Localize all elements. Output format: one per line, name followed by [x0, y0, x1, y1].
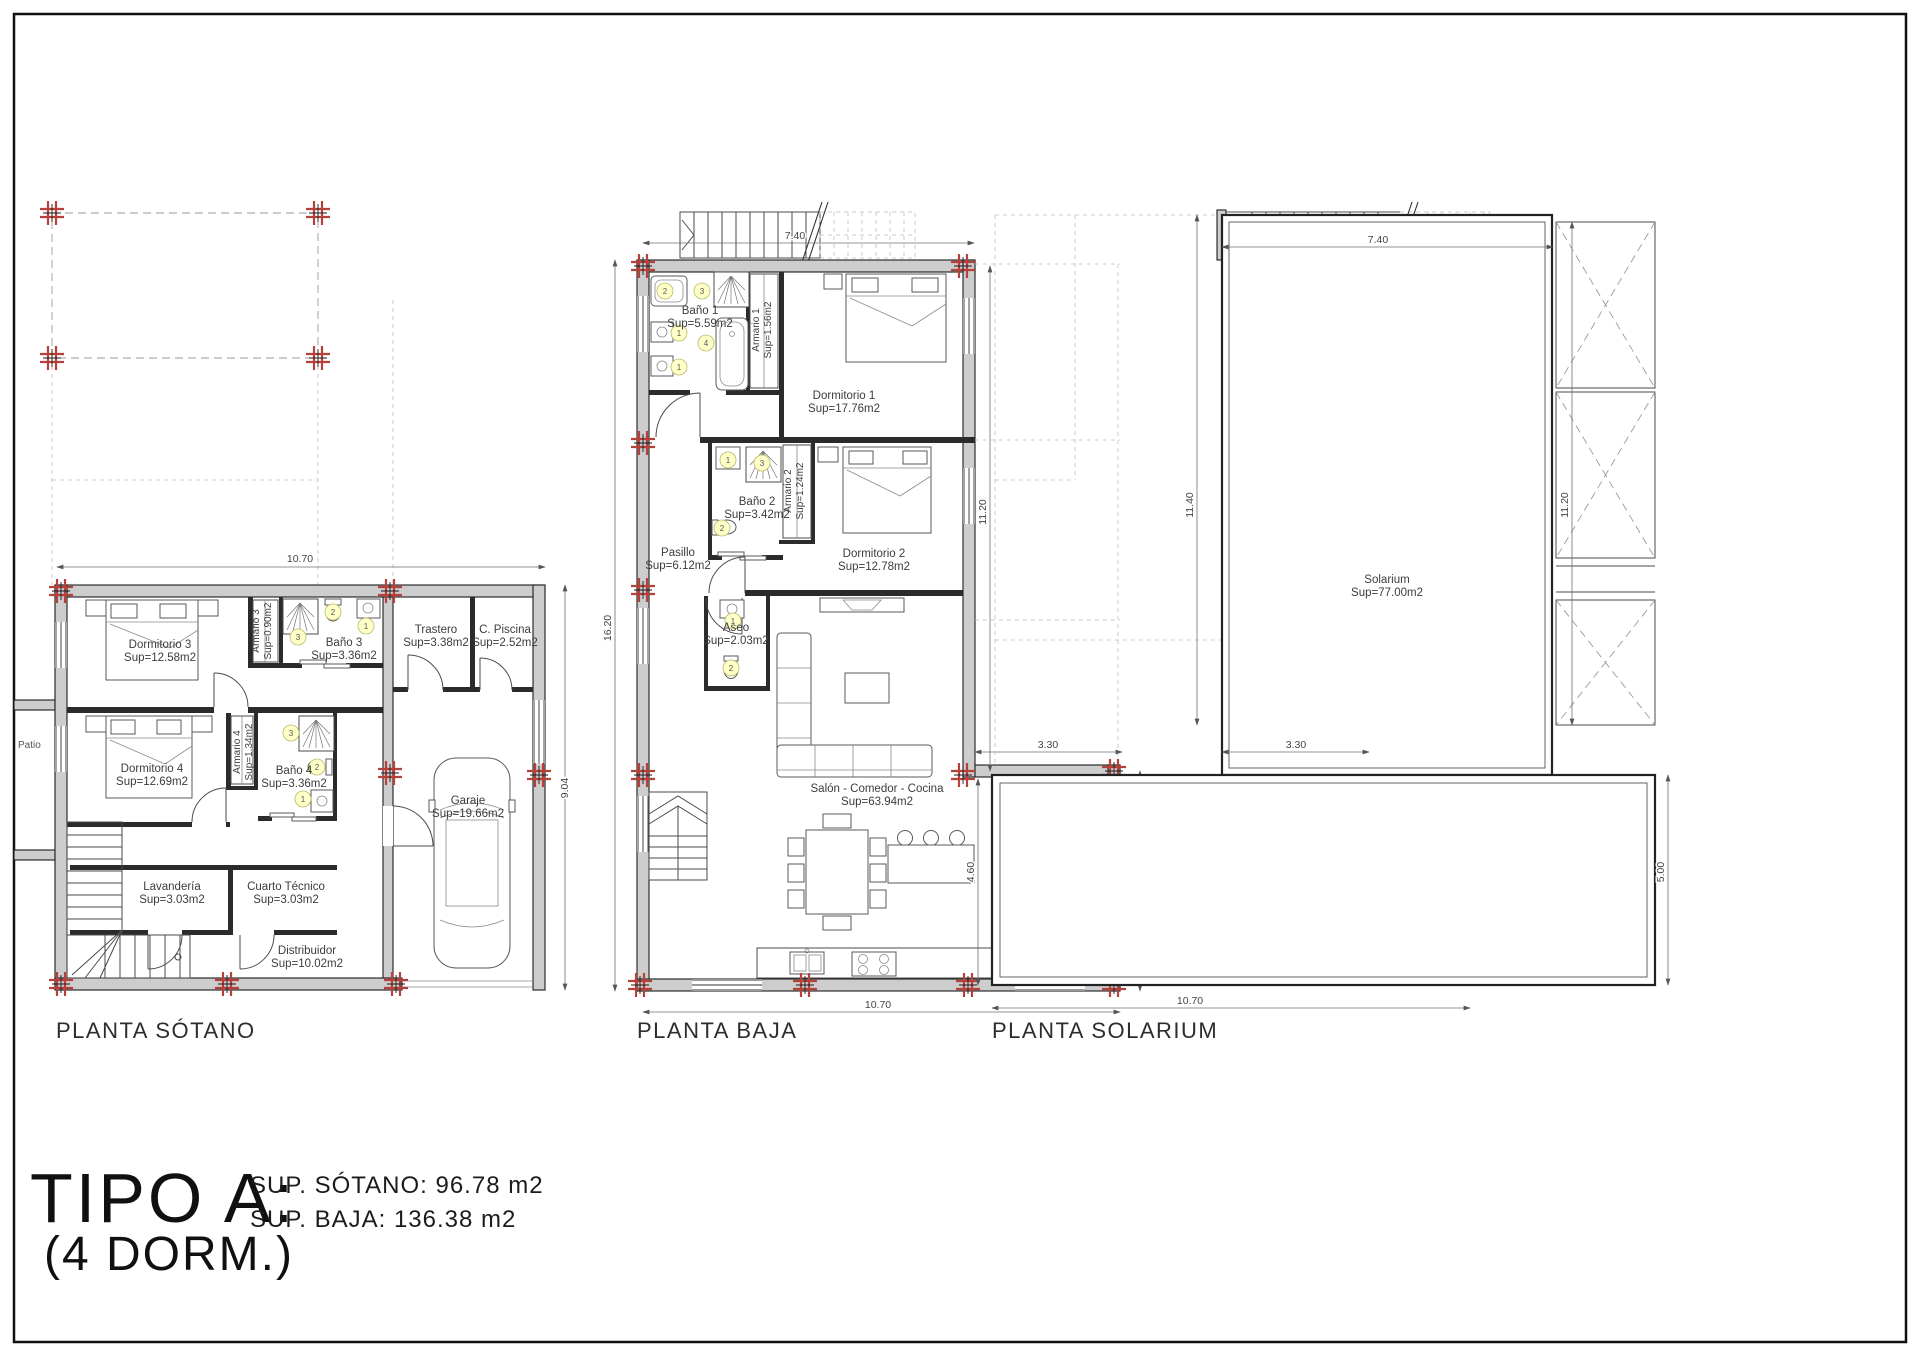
planta-solarium: Solarium Sup=77.00m2 7.40 11.40 11.20 3.… [965, 202, 1668, 1043]
svg-text:1: 1 [726, 456, 731, 465]
room-label: Distribuidor [278, 945, 336, 957]
room-area: Sup=12.69m2 [116, 776, 188, 788]
svg-text:2: 2 [315, 763, 320, 772]
plan-title-baja: PLANTA BAJA [637, 1018, 797, 1043]
fixture-marker: 1 [671, 359, 687, 375]
room-area: Sup=2.52m2 [472, 637, 538, 649]
sup-sotano-label: SUP. SÓTANO: 96.78 m2 [250, 1172, 544, 1199]
room-label: Aseo [723, 622, 749, 634]
dorm-label: (4 DORM.) [44, 1228, 294, 1281]
fixture-marker: 3 [283, 725, 299, 741]
svg-text:2: 2 [331, 608, 336, 617]
planta-sotano: Patio [14, 201, 571, 1043]
room-label: Armario 4 [232, 730, 243, 774]
room-area: Sup=19.66m2 [432, 808, 504, 820]
tv-unit [820, 598, 904, 612]
room-area: Sup=3.38m2 [403, 637, 469, 649]
room-label: Armario 2 [783, 469, 794, 513]
room-label: Armario 3 [251, 609, 262, 653]
svg-text:3: 3 [296, 633, 301, 642]
sup-baja-label: SUP. BAJA: 136.38 m2 [250, 1206, 516, 1233]
room-label: Baño 4 [276, 765, 313, 777]
room-area: Sup=3.03m2 [253, 894, 319, 906]
sofa [777, 633, 932, 777]
room-label: Solarium [1364, 574, 1409, 586]
dim-right-lower: 5.00 [1655, 862, 1667, 883]
svg-text:2: 2 [663, 287, 668, 296]
fixture-marker: 1 [720, 452, 736, 468]
room-label: Cuarto Técnico [247, 881, 325, 893]
room-area: Sup=12.58m2 [124, 652, 196, 664]
sink-bano4 [311, 790, 333, 812]
sheet-border [14, 14, 1906, 1342]
drawing-canvas: Patio [0, 0, 1920, 1356]
pergola-panels [1556, 222, 1655, 725]
room-area: Sup=10.02m2 [271, 958, 343, 970]
room-area: Sup=5.59m2 [667, 318, 733, 330]
dim-width: 10.70 [287, 553, 313, 565]
baja-dashed-extension [975, 264, 1120, 765]
dim-top: 7.40 [1368, 234, 1389, 246]
room-area: Sup=1.24m2 [795, 462, 806, 519]
fixture-marker: 2 [325, 604, 341, 620]
car [429, 758, 515, 968]
svg-text:1: 1 [301, 795, 306, 804]
room-label: Lavandería [143, 881, 201, 893]
room-label: Baño 1 [682, 305, 718, 317]
sink-bano3 [357, 599, 380, 618]
patio-wall-stub [14, 850, 55, 860]
porch-outline [52, 213, 393, 585]
coffee-table [845, 673, 889, 703]
svg-text:1: 1 [677, 329, 682, 338]
dim-height: 9.04 [559, 778, 571, 799]
svg-text:3: 3 [760, 459, 765, 468]
room-area: Sup=3.42m2 [724, 509, 790, 521]
svg-text:2: 2 [720, 524, 725, 533]
solarium-lower-terrace [992, 775, 1655, 985]
fixture-marker: 2 [723, 660, 739, 676]
room-label: C. Piscina [479, 624, 531, 636]
plan-title-solarium: PLANTA SOLARIUM [992, 1018, 1218, 1043]
title-block: TIPO A: (4 DORM.) SUP. SÓTANO: 96.78 m2 … [30, 1159, 544, 1281]
room-area: Sup=1.34m2 [244, 723, 255, 780]
room-area: Sup=3.36m2 [311, 650, 377, 662]
patio-wall-stub [14, 700, 55, 710]
kitchen-island [888, 831, 974, 884]
fixture-marker: 3 [694, 283, 710, 299]
fixture-marker: 3 [290, 629, 306, 645]
svg-text:3: 3 [289, 729, 294, 738]
dim-bottom: 10.70 [1177, 995, 1203, 1007]
room-area: Sup=0.90m2 [263, 602, 274, 659]
patio-label: Patio [18, 740, 41, 751]
dim-ext: 3.30 [1286, 739, 1307, 751]
fixture-marker: 4 [698, 335, 714, 351]
room-label: Baño 3 [326, 637, 362, 649]
room-label: Dormitorio 4 [121, 763, 184, 775]
shower-bano3 [283, 599, 318, 634]
dim-left-lower: 4.60 [965, 862, 977, 883]
svg-text:1: 1 [364, 622, 369, 631]
dim-ext: 3.30 [1038, 739, 1059, 751]
fixture-marker: 2 [657, 283, 673, 299]
shower-bano4 [299, 716, 334, 751]
fixture-marker: 3 [754, 455, 770, 471]
fixture-marker: 1 [295, 791, 311, 807]
room-label: Salón - Comedor - Cocina [811, 783, 945, 795]
room-area: Sup=17.76m2 [808, 403, 880, 415]
svg-text:1: 1 [677, 363, 682, 372]
floor-plan-sheet: Patio [0, 0, 1920, 1356]
dim-left: 11.40 [1184, 492, 1196, 518]
room-area: Sup=3.03m2 [139, 894, 205, 906]
fixture-marker: 1 [358, 618, 374, 634]
room-label: Dormitorio 2 [843, 548, 906, 560]
stairs-down [649, 792, 707, 880]
svg-text:3: 3 [700, 287, 705, 296]
room-label: Dormitorio 3 [129, 639, 192, 651]
room-label: Baño 2 [739, 496, 775, 508]
room-label: Dormitorio 1 [813, 390, 876, 402]
room-area: Sup=12.78m2 [838, 561, 910, 573]
dim-right-upper: 11.20 [977, 499, 989, 525]
room-label: Pasillo [661, 547, 695, 559]
room-area: Sup=3.36m2 [261, 778, 327, 790]
dining-table [788, 814, 886, 930]
dim-bottom: 10.70 [865, 999, 891, 1011]
plan-title-sotano: PLANTA SÓTANO [56, 1018, 256, 1043]
dim-left: 16.20 [602, 615, 614, 641]
bed-dormitorio2 [818, 447, 931, 533]
svg-text:2: 2 [729, 664, 734, 673]
room-area: Sup=2.03m2 [703, 635, 769, 647]
dim-inner: 11.20 [1559, 492, 1571, 518]
room-area: Sup=6.12m2 [645, 560, 711, 572]
solarium-main-block [1222, 215, 1552, 775]
room-label: Armario 1 [751, 308, 762, 352]
room-area: Sup=77.00m2 [1351, 587, 1423, 599]
room-label: Trastero [415, 624, 457, 636]
room-area: Sup=63.94m2 [841, 796, 913, 808]
fixture-marker: 2 [714, 520, 730, 536]
bed-dormitorio1 [824, 274, 946, 362]
room-label: Garaje [451, 795, 486, 807]
svg-text:4: 4 [704, 339, 709, 348]
room-area: Sup=1.56m2 [763, 301, 774, 358]
dim-top: 7.40 [785, 230, 806, 242]
